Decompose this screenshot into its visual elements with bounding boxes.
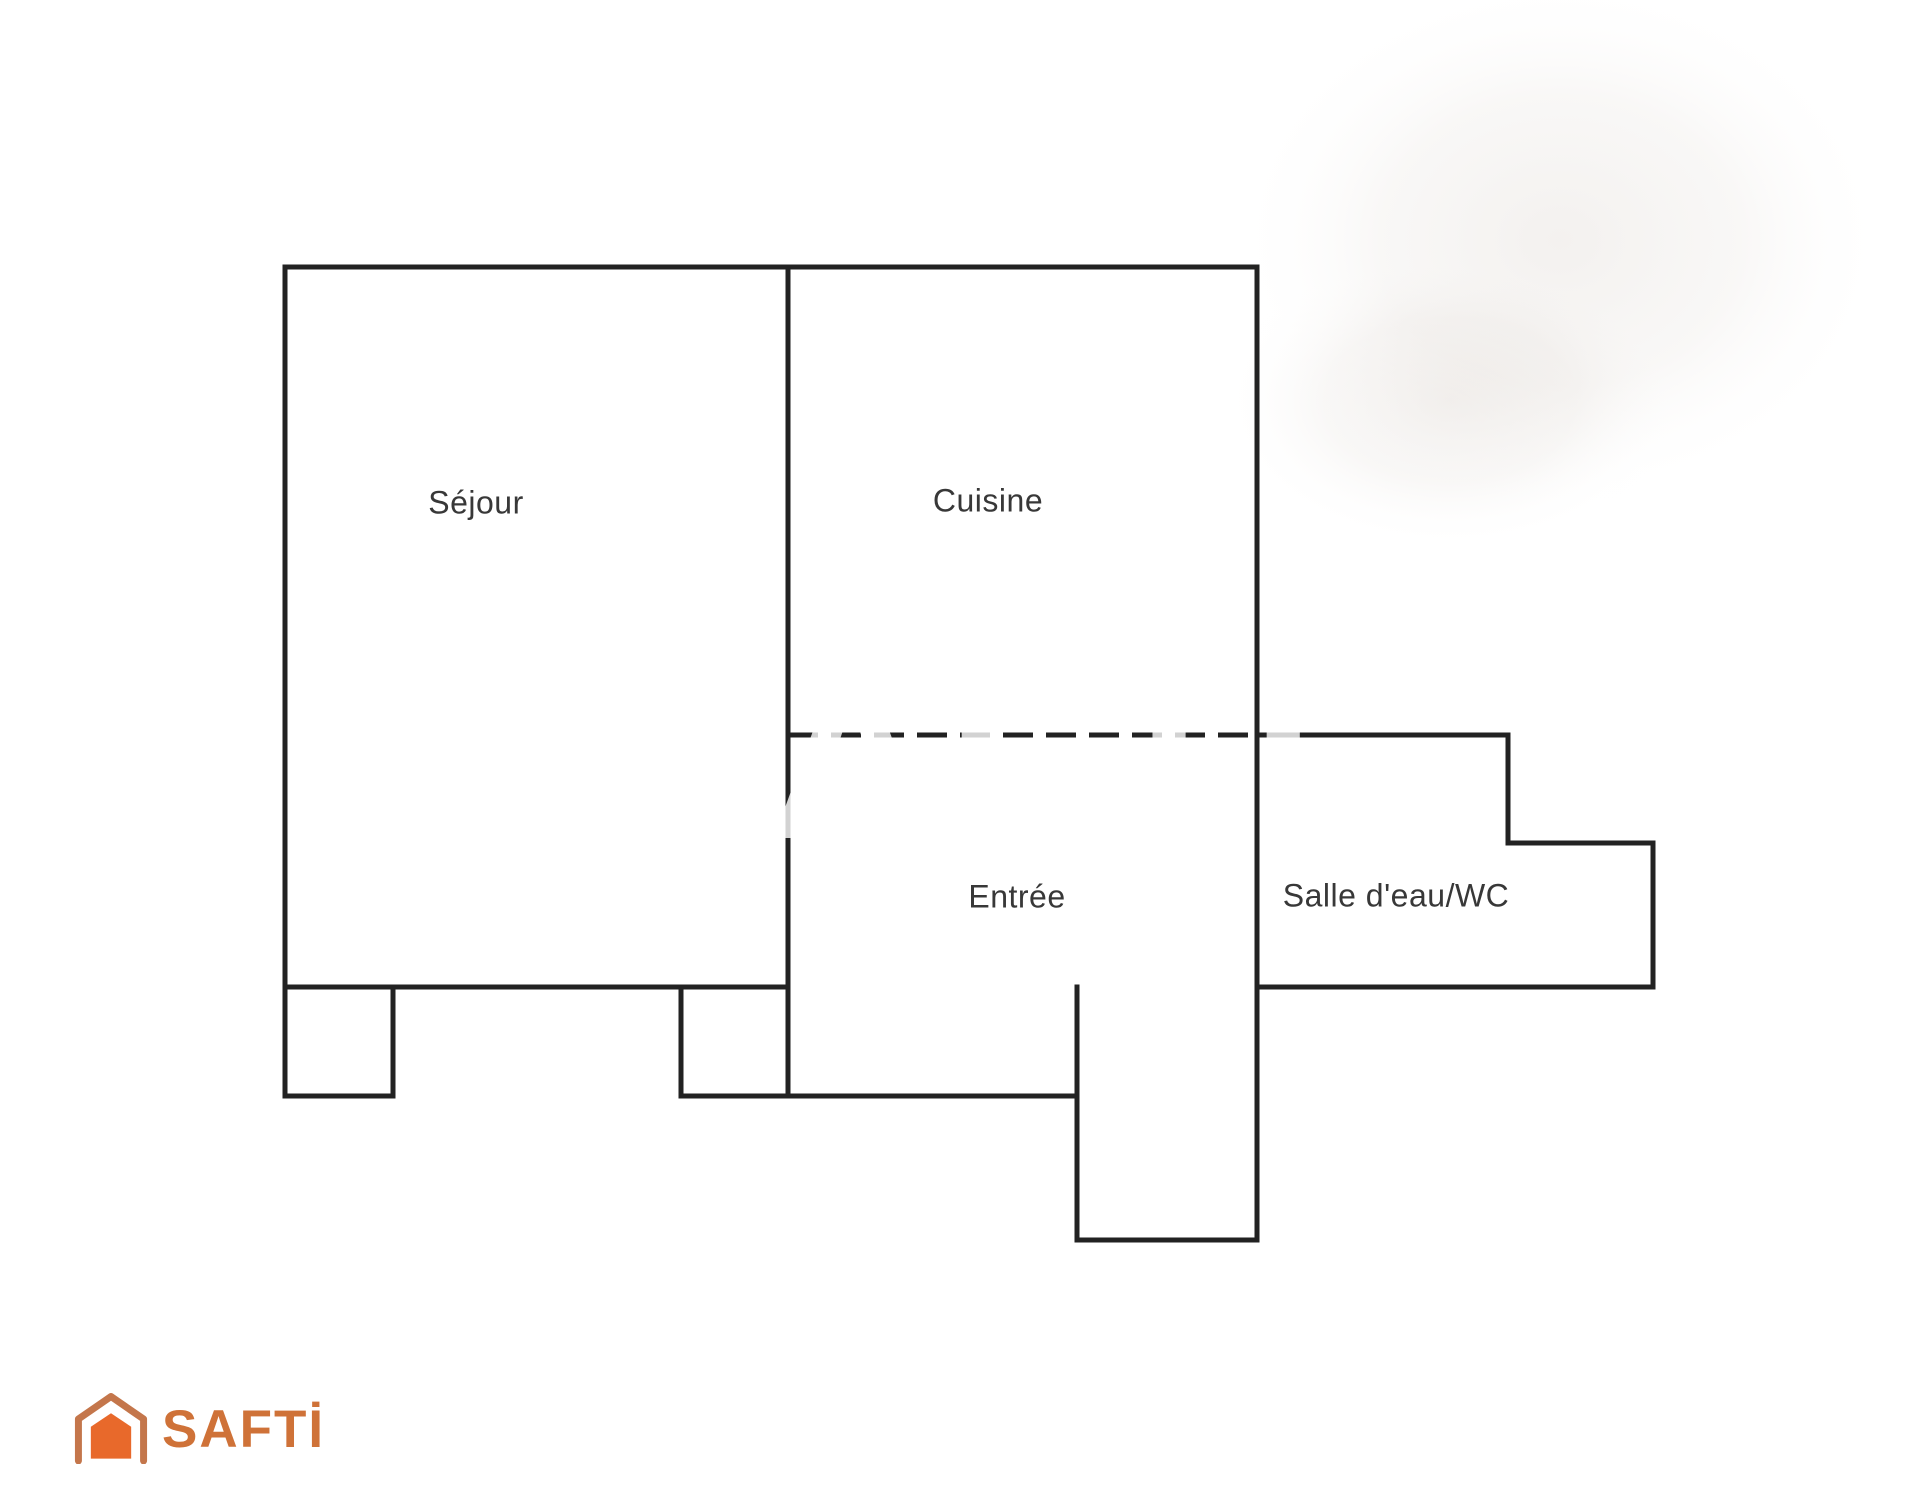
house-icon: [70, 1388, 152, 1464]
safti-logo: SAFTİ: [70, 1388, 325, 1464]
logo-text: SAFTİ: [162, 1397, 325, 1456]
room-label-entree: Entrée: [968, 879, 1065, 916]
floorplan-drawing: SAFTI: [0, 0, 1920, 1493]
watermark-text: SAFTI: [603, 630, 1327, 887]
watermark-blob: [1220, 0, 1890, 550]
floorplan-canvas: SAFTI Séjour Cuisine Entrée Salle d'eau/…: [0, 0, 1920, 1493]
room-label-salle-eau: Salle d'eau/WC: [1283, 878, 1510, 915]
room-label-cuisine: Cuisine: [933, 483, 1043, 520]
room-label-sejour: Séjour: [428, 485, 524, 522]
